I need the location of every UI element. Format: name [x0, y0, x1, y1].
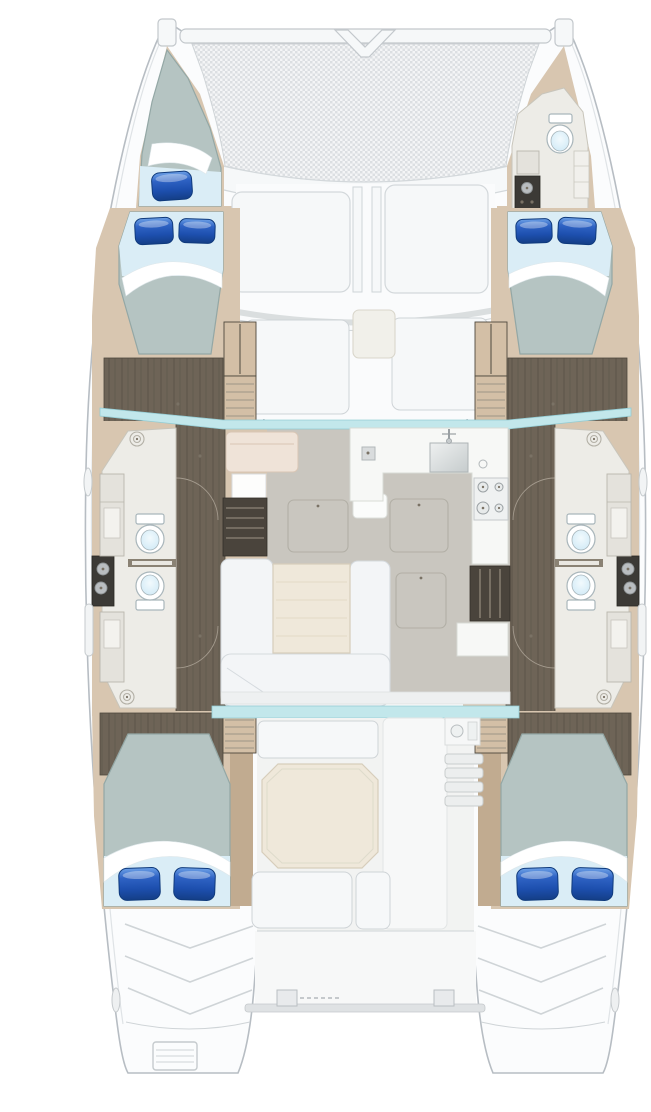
cockpit-walkway: [383, 718, 447, 929]
port-fwd-companionway: [224, 322, 256, 422]
head-shelf: [574, 151, 589, 198]
saloon-table: [273, 564, 350, 653]
port-aft-companionway: [223, 713, 256, 753]
toilet: [136, 514, 164, 553]
panel-divider: [372, 187, 381, 292]
port-hull-stairwell: [223, 498, 267, 556]
starboard-bow-fitting: [555, 19, 573, 46]
corridor-floor: [506, 424, 555, 716]
davit-fitting: [434, 990, 454, 1006]
starboard-hull-stairwell: [470, 566, 510, 621]
forward-crossbeam: [180, 29, 551, 43]
cockpit-lounge-seat: [356, 872, 390, 929]
toilet: [567, 514, 595, 553]
fwd-bench-port: [245, 320, 349, 414]
starboard-forward-cabin: [491, 208, 639, 428]
davit-fitting: [277, 990, 297, 1006]
head-cabinet: [607, 474, 631, 556]
wet-bar-module: [445, 718, 480, 745]
starboard-fwd-companionway: [475, 322, 507, 422]
galley-cabinet: [457, 623, 508, 656]
vanity-sink-unit: [617, 556, 639, 606]
cockpit-fwd-bench: [258, 721, 378, 758]
forward-cockpit: [216, 184, 515, 419]
corridor-floor: [176, 424, 225, 716]
floorplan-drawing: [40, 16, 651, 1096]
port-bow-fitting: [158, 19, 176, 46]
catamaran-floorplan: [40, 16, 651, 1096]
trampoline: [192, 44, 539, 188]
cockpit-table: [262, 764, 378, 868]
cooktop: [474, 478, 508, 520]
saloon-aft-window: [212, 706, 519, 718]
hull-handle: [611, 988, 619, 1012]
fwd-bench-starboard: [392, 318, 488, 410]
cockpit: [252, 718, 483, 931]
cockpit-aft-bench: [252, 872, 352, 928]
head-cabinet: [100, 612, 124, 682]
port-forward-cabin: [92, 208, 240, 428]
fwd-cockpit-table: [353, 310, 395, 358]
head-cabinet: [607, 612, 631, 682]
panel-divider: [353, 187, 362, 292]
toilet: [567, 572, 595, 610]
galley-sink: [430, 443, 468, 472]
aft-sill: [221, 692, 510, 704]
head-cabinet: [100, 474, 124, 556]
vanity-sink-unit: [92, 556, 114, 606]
coachroof-panel-starboard: [385, 185, 488, 293]
nav-table: [232, 474, 266, 500]
nav-seat: [226, 432, 298, 472]
inboard-shelf: [230, 749, 253, 906]
hull-handle: [112, 988, 120, 1012]
coachroof-panel-port: [232, 192, 350, 292]
vanity-sink-unit: [515, 176, 540, 211]
toilet: [136, 572, 164, 610]
toilet: [547, 114, 573, 153]
head-cabinet: [517, 151, 539, 174]
